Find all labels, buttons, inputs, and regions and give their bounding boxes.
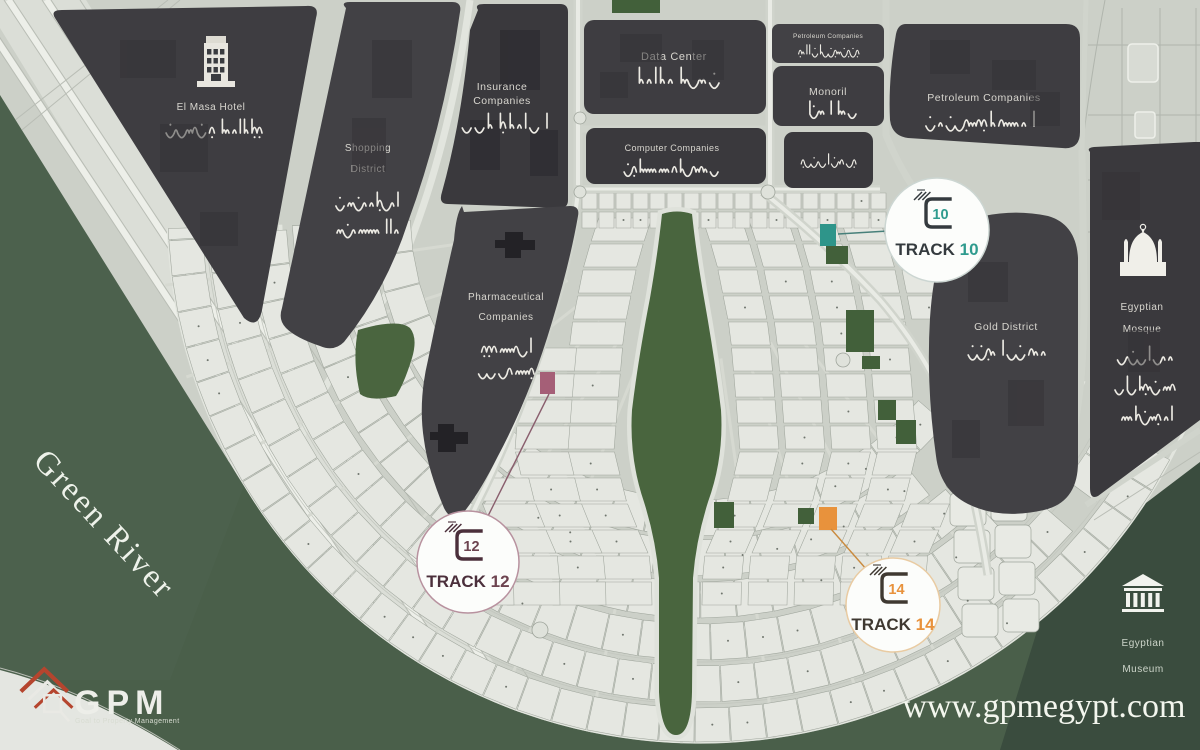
svg-text:Egyptian: Egyptian <box>1122 638 1165 649</box>
svg-text:10: 10 <box>932 207 948 223</box>
svg-text:www.gpmegypt.com: www.gpmegypt.com <box>903 688 1186 725</box>
svg-text:Petroleum Companies: Petroleum Companies <box>793 33 863 40</box>
svg-text:Museum: Museum <box>1122 664 1163 675</box>
svg-text:Monoril: Monoril <box>809 86 847 98</box>
svg-text:Egyptian: Egyptian <box>1121 302 1164 313</box>
svg-text:14: 14 <box>888 582 904 598</box>
svg-text:Petroleum Companies: Petroleum Companies <box>927 92 1040 104</box>
svg-text:Pharmaceutical: Pharmaceutical <box>468 292 544 303</box>
svg-text:12: 12 <box>463 539 479 555</box>
svg-text:Companies: Companies <box>478 312 533 323</box>
svg-text:Companies: Companies <box>473 95 531 107</box>
svg-text:TRACK 12: TRACK 12 <box>426 572 509 591</box>
svg-text:TRACK 10: TRACK 10 <box>895 240 978 259</box>
svg-text:Computer Companies: Computer Companies <box>625 143 720 153</box>
svg-text:Insurance: Insurance <box>477 81 528 93</box>
svg-text:TRACK 14: TRACK 14 <box>851 615 935 634</box>
svg-text:GPM: GPM <box>74 684 169 722</box>
svg-text:Gold District: Gold District <box>974 321 1038 333</box>
svg-text:Goal to Property Management: Goal to Property Management <box>75 718 180 725</box>
svg-text:El Masa Hotel: El Masa Hotel <box>177 102 246 113</box>
